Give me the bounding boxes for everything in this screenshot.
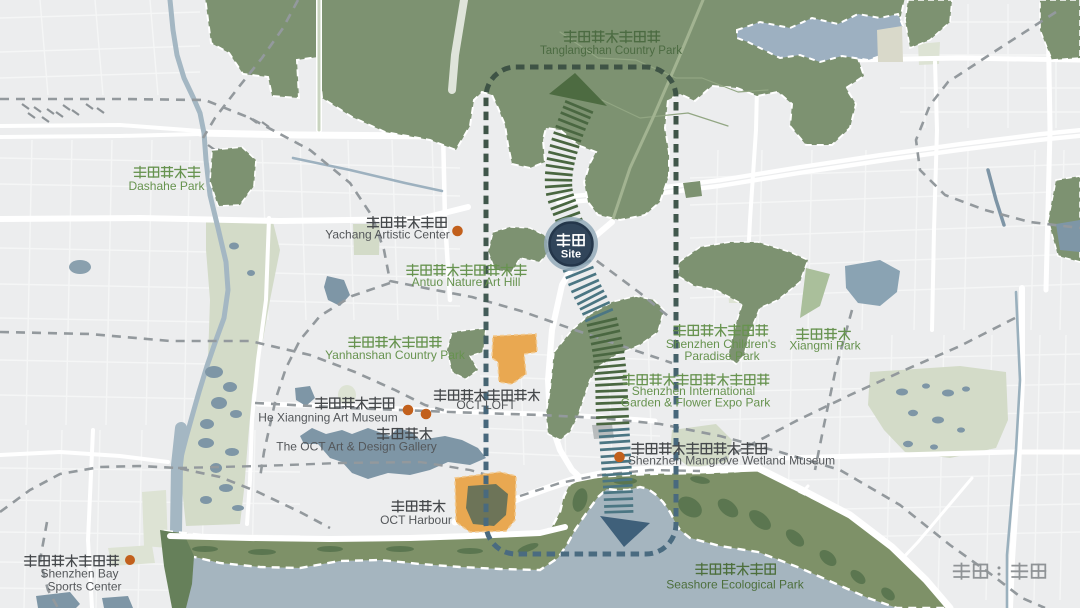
svg-text:Paradise Park: Paradise Park: [684, 349, 760, 363]
svg-text:Seashore Ecological Park: Seashore Ecological Park: [666, 578, 804, 592]
svg-text:Yanhanshan Country Park: Yanhanshan Country Park: [325, 348, 466, 362]
svg-text:OCT-LOFT: OCT-LOFT: [456, 398, 516, 412]
svg-text:OCT Harbour: OCT Harbour: [380, 513, 452, 527]
svg-text:Xiangmi Park: Xiangmi Park: [789, 339, 861, 353]
svg-text:Antuo Nature Art Hill: Antuo Nature Art Hill: [412, 275, 521, 289]
svg-text:Shenzhen Mangrove Wetland Muse: Shenzhen Mangrove Wetland Museum: [628, 454, 835, 468]
svg-text:Site: Site: [561, 248, 581, 260]
svg-text:The OCT Art & Design Gallery: The OCT Art & Design Gallery: [276, 440, 437, 454]
svg-text:Shenzhen Bay: Shenzhen Bay: [40, 567, 118, 581]
svg-text:Yachang Artistic Center: Yachang Artistic Center: [325, 228, 450, 242]
svg-text:Sports Center: Sports Center: [47, 580, 121, 594]
svg-text:Tanglangshan Country Park: Tanglangshan Country Park: [540, 45, 682, 57]
svg-text:Dashahe Park: Dashahe Park: [128, 179, 205, 193]
svg-text:He Xiangning Art Museum: He Xiangning Art Museum: [258, 411, 397, 425]
svg-text:Garden & Flower Expo Park: Garden & Flower Expo Park: [621, 396, 771, 410]
